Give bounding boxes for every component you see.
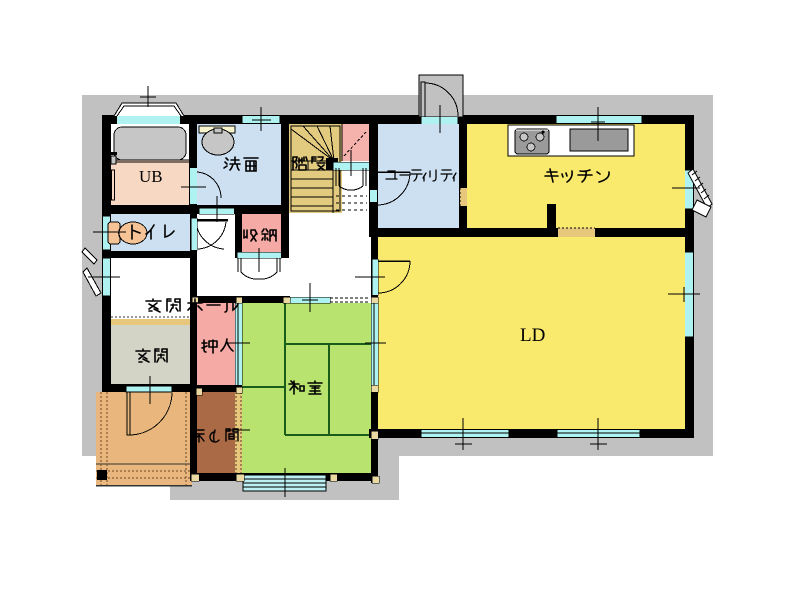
svg-text:LD: LD xyxy=(520,325,545,346)
svg-text:UB: UB xyxy=(139,167,163,186)
